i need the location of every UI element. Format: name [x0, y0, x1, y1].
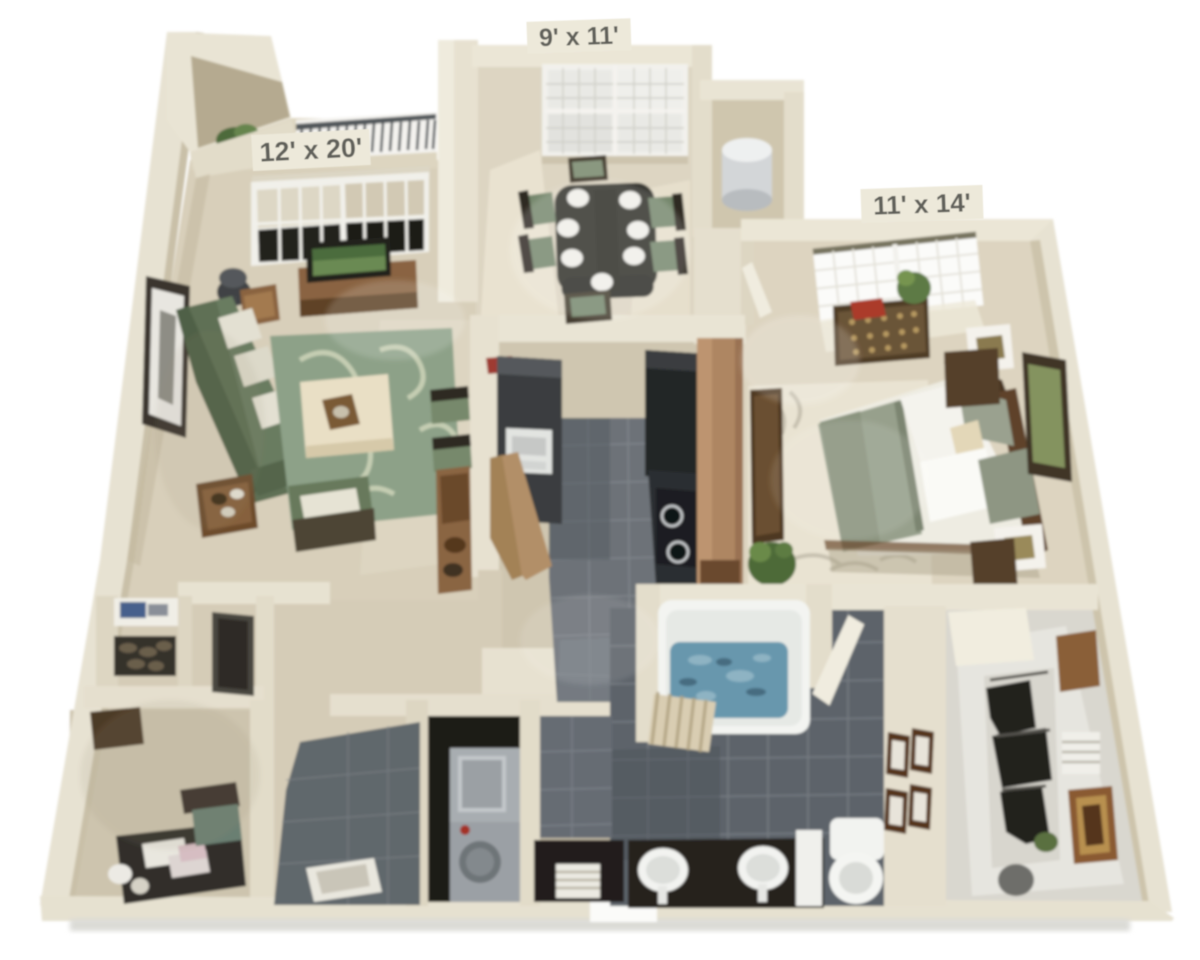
- svg-text:12' x 20': 12' x 20': [259, 132, 363, 167]
- svg-text:11' x 14': 11' x 14': [873, 187, 972, 220]
- svg-text:9' x 11': 9' x 11': [539, 22, 620, 53]
